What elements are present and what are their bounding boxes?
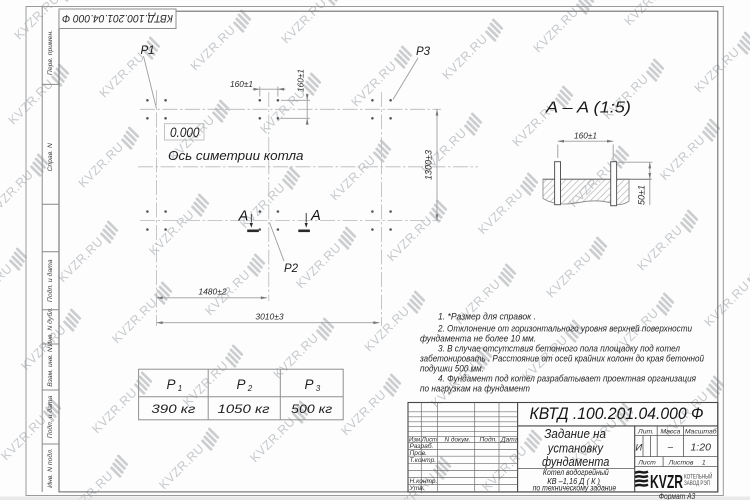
svg-text:A – A (1:5): A – A (1:5)	[545, 100, 631, 117]
svg-text:P2: P2	[284, 263, 299, 275]
svg-text:Т.контр.: Т.контр.	[410, 457, 437, 464]
svg-text:фундамента не более 10 мм.: фундамента не более 10 мм.	[420, 334, 536, 344]
svg-text:P: P	[304, 377, 313, 392]
svg-text:ЗАВОД РЭП: ЗАВОД РЭП	[684, 481, 710, 487]
svg-text:Взам. инв. N: Взам. инв. N	[47, 347, 54, 387]
svg-text:фундамента: фундамента	[542, 455, 609, 469]
svg-text:A: A	[238, 209, 249, 225]
svg-text:390 кг: 390 кг	[151, 402, 195, 416]
svg-text:1. *Размер для справок .: 1. *Размер для справок .	[438, 312, 536, 322]
svg-text:160±1: 160±1	[296, 69, 306, 92]
svg-text:Масса: Масса	[660, 429, 680, 436]
svg-text:И: И	[635, 443, 642, 454]
svg-text:Задание на: Задание на	[544, 427, 606, 441]
svg-text:50±1: 50±1	[637, 185, 647, 205]
svg-text:KVZR: KVZR	[650, 471, 683, 492]
svg-text:P3: P3	[416, 46, 431, 58]
svg-text:P: P	[236, 377, 245, 392]
svg-text:1: 1	[702, 460, 706, 467]
svg-text:1050 кг: 1050 кг	[218, 402, 270, 416]
svg-text:по нагрузкам на фундамент: по нагрузкам на фундамент	[420, 384, 530, 394]
svg-text:P: P	[166, 377, 175, 392]
svg-text:Инв. N подл.: Инв. N подл.	[46, 448, 54, 488]
svg-text:1480±2: 1480±2	[198, 287, 227, 297]
svg-text:Утв.: Утв.	[409, 485, 425, 492]
svg-text:3010±3: 3010±3	[255, 311, 284, 321]
svg-text:по техническому задание: по техническому задание	[533, 484, 617, 493]
svg-text:Формат А3: Формат А3	[659, 492, 696, 500]
svg-text:Разраб.: Разраб.	[410, 442, 434, 450]
svg-text:A: A	[310, 208, 321, 224]
svg-text:Листов: Листов	[668, 460, 694, 467]
svg-text:забетонировать . Расстояние: забетонировать . Расстояние от осей край…	[419, 354, 704, 364]
svg-text:1:20: 1:20	[690, 442, 711, 454]
svg-text:Справ. N: Справ. N	[47, 143, 54, 172]
svg-text:N докум.: N докум.	[445, 435, 471, 443]
svg-text:Подп. и дата: Подп. и дата	[46, 259, 54, 302]
svg-text:Лит.: Лит.	[637, 429, 654, 436]
svg-text:–: –	[667, 442, 674, 453]
svg-text:КОТЕЛЬНЫЙ: КОТЕЛЬНЫЙ	[684, 473, 712, 481]
svg-text:КВТД .100.201.04.000 Ф: КВТД .100.201.04.000 Ф	[530, 405, 704, 423]
svg-text:160±1: 160±1	[574, 131, 597, 141]
svg-text:2: 2	[247, 384, 253, 393]
svg-text:Перв. примен.: Перв. примен.	[47, 30, 54, 75]
svg-text:КВТД.100.201.04.000 Ф: КВТД.100.201.04.000 Ф	[62, 12, 173, 24]
svg-text:1: 1	[178, 384, 182, 393]
svg-text:Лист: Лист	[637, 460, 656, 467]
svg-text:160±1: 160±1	[230, 79, 253, 89]
svg-text:Подп. и дата: Подп. и дата	[46, 396, 54, 439]
svg-text:P1: P1	[140, 45, 154, 57]
svg-text:1300±3: 1300±3	[424, 150, 434, 180]
svg-text:подушки 500 мм.: подушки 500 мм.	[420, 364, 484, 374]
svg-text:Масштаб: Масштаб	[685, 428, 718, 436]
svg-text:3. В случае отсутствия бет: 3. В случае отсутствия бетонного пола пл…	[438, 344, 680, 354]
svg-text:Подп.: Подп.	[480, 435, 498, 443]
svg-text:2. Отклонение от горизонтал: 2. Отклонение от горизонтального уровня …	[437, 324, 692, 334]
svg-text:Дата: Дата	[500, 436, 519, 443]
svg-text:Котел водогрейный: Котел водогрейный	[543, 468, 609, 477]
svg-text:0.000: 0.000	[170, 124, 200, 140]
svg-text:500 кг: 500 кг	[291, 402, 332, 416]
svg-text:Ось симетрии котла: Ось симетрии котла	[168, 148, 304, 163]
svg-text:3: 3	[316, 384, 321, 393]
svg-text:Инв. N дубл.: Инв. N дубл.	[46, 307, 54, 346]
svg-text:4. Фундамент под котел раз: 4. Фундамент под котел разрабатывает про…	[438, 374, 696, 384]
svg-text:установку: установку	[547, 441, 604, 455]
